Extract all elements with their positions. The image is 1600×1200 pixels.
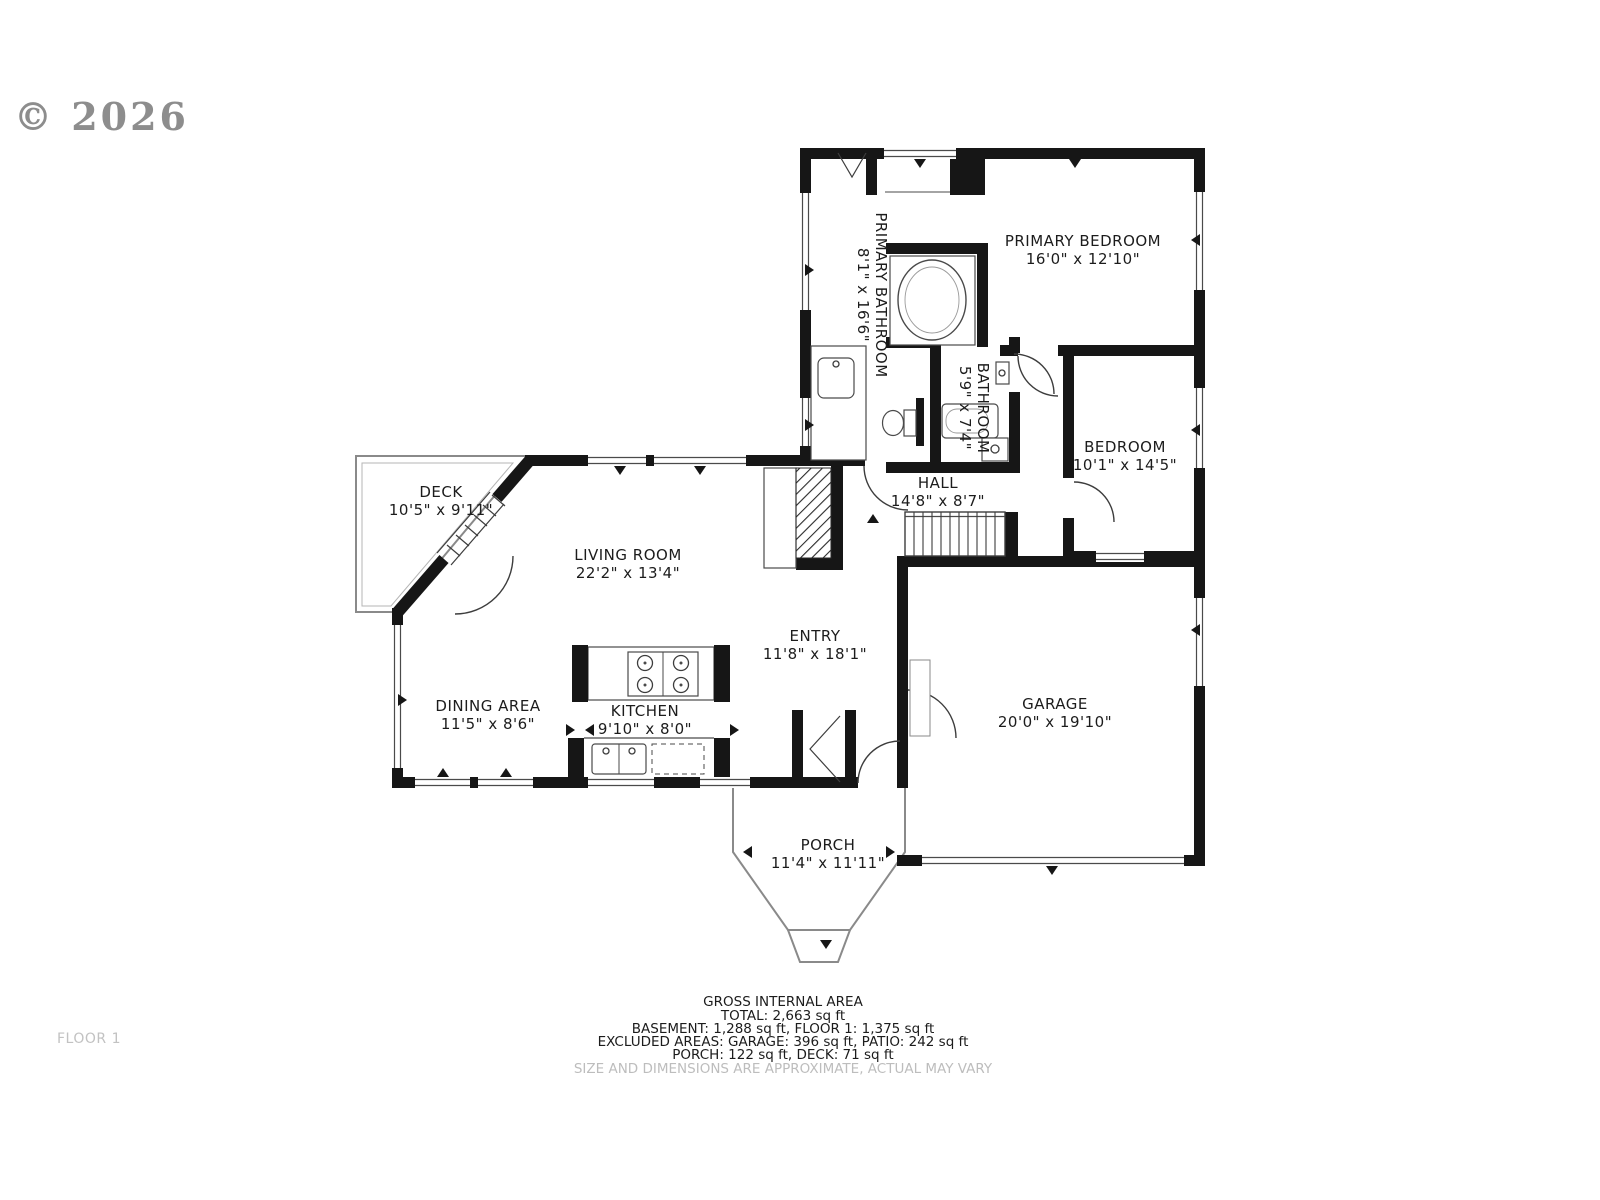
label-porch-dims: 11'4" x 11'11"	[771, 854, 885, 872]
label-bathroom-dims: 5'9" x 7'4"	[956, 366, 974, 450]
label-living-room-dims: 22'2" x 13'4"	[576, 564, 680, 582]
bathtub-icon	[898, 260, 966, 340]
summary-disclaimer: SIZE AND DIMENSIONS ARE APPROXIMATE, ACT…	[574, 1061, 993, 1077]
label-entry-name: ENTRY	[790, 627, 841, 645]
floor-label: FLOOR 1	[57, 1031, 121, 1047]
label-primary-bedroom-name: PRIMARY BEDROOM	[1005, 232, 1161, 250]
label-kitchen-name: KITCHEN	[611, 702, 680, 720]
stove-icon	[628, 652, 698, 696]
label-entry-dims: 11'8" x 18'1"	[763, 645, 867, 663]
label-primary-bedroom-dims: 16'0" x 12'10"	[1026, 250, 1140, 268]
label-living-room-name: LIVING ROOM	[574, 546, 682, 564]
copyright-watermark: © 2026	[14, 94, 189, 139]
stairs	[905, 512, 1005, 556]
porch-outline	[733, 788, 905, 962]
label-primary-bathroom-name: PRIMARY BATHROOM	[872, 212, 890, 377]
bedroom-door-arc	[1074, 482, 1114, 522]
living-patio-door-arc	[455, 556, 513, 614]
entry-closet-chevron-icon	[810, 716, 840, 782]
label-bedroom-name: BEDROOM	[1084, 438, 1166, 456]
fireplace	[764, 468, 831, 568]
dishwasher-icon	[652, 744, 704, 774]
deck-outline	[356, 456, 528, 612]
label-porch-name: PORCH	[801, 836, 856, 854]
kitchen-counter	[568, 738, 730, 777]
floor-plan-svg: PRIMARY BEDROOM 16'0" x 12'10" PRIMARY B…	[0, 0, 1600, 1200]
area-summary: GROSS INTERNAL AREA TOTAL: 2,663 sq ft B…	[574, 994, 993, 1077]
label-bedroom-dims: 10'1" x 14'5"	[1073, 456, 1177, 474]
toilet-icon	[883, 410, 917, 436]
label-garage-name: GARAGE	[1022, 695, 1088, 713]
front-door-arc	[858, 741, 900, 783]
floor-plan-page: PRIMARY BEDROOM 16'0" x 12'10" PRIMARY B…	[0, 0, 1600, 1200]
label-dining-area-name: DINING AREA	[435, 697, 540, 715]
label-kitchen-dims: 9'10" x 8'0"	[598, 720, 692, 738]
label-deck-name: DECK	[419, 483, 463, 501]
label-primary-bathroom-dims: 8'1" x 16'6"	[854, 248, 872, 342]
label-dining-area-dims: 11'5" x 8'6"	[441, 715, 535, 733]
kitchen-island	[572, 645, 730, 702]
sink-icon	[592, 744, 646, 774]
label-bathroom-name: BATHROOM	[974, 363, 992, 454]
label-garage-dims: 20'0" x 19'10"	[998, 713, 1112, 731]
label-hall-dims: 14'8" x 8'7"	[891, 492, 985, 510]
label-hall-name: HALL	[918, 474, 958, 492]
label-deck-dims: 10'5" x 9'11"	[389, 501, 493, 519]
garage-closet	[910, 660, 930, 736]
sink-icon	[996, 362, 1009, 384]
